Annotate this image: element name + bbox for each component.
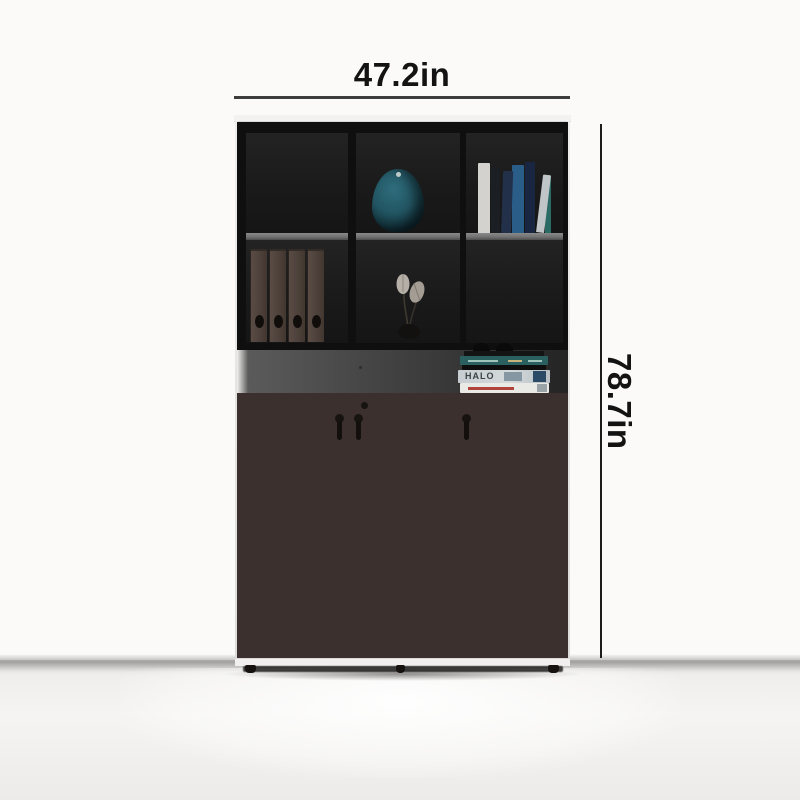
binder-hole: [312, 315, 321, 328]
height-dimension-label: 78.7in: [603, 346, 636, 456]
door-handle-right: [462, 414, 471, 442]
stacked-books: HALO: [456, 351, 552, 393]
screw-dot: [359, 366, 362, 369]
standing-books: [478, 159, 560, 233]
cabinet-foot: [396, 665, 405, 673]
cabinet-door-middle: [349, 393, 459, 658]
open-niche: HALO: [237, 350, 568, 393]
shelf-compartment-bottom-left: [246, 240, 348, 343]
stacked-book-halo: HALO: [458, 370, 550, 383]
tulip-flowers: [384, 265, 434, 343]
shelf-edge: [246, 233, 348, 240]
door-section: [237, 393, 568, 658]
book-spine: [525, 162, 535, 233]
door-lock-keyhole: [361, 402, 368, 409]
handle-bar: [356, 421, 361, 440]
shelf-edge: [466, 233, 563, 240]
shelf-compartment-top-middle: [356, 133, 460, 233]
width-dimension-label: 47.2in: [234, 58, 570, 91]
ring-binder: [288, 249, 305, 342]
binder-hole: [293, 315, 302, 328]
book-spine: [491, 167, 500, 233]
binder-hole: [255, 315, 264, 328]
teal-vase: [372, 169, 424, 232]
stacked-book: [460, 356, 548, 365]
handle-bar: [464, 421, 469, 440]
cabinet-foot: [245, 665, 256, 673]
ring-binder: [250, 249, 267, 342]
handle-bar: [337, 421, 342, 440]
bookcase-cabinet: HALO: [235, 115, 570, 673]
door-handle-left: [335, 414, 344, 442]
spine-graphic: [504, 372, 522, 381]
stacked-book: [460, 383, 549, 393]
floor-reflection: [120, 668, 680, 778]
ring-binders: [250, 249, 324, 342]
cabinet-door-left: [237, 393, 347, 658]
shelf-compartment-top-left: [246, 133, 348, 233]
upper-shelf-unit: [237, 122, 568, 350]
niche-side-panel: [237, 350, 248, 393]
cabinet-top-edge: [234, 115, 571, 122]
cabinet-foot: [548, 665, 559, 673]
cabinet-door-right: [461, 393, 568, 658]
width-dimension-line: [234, 96, 570, 99]
book-spine: [478, 163, 490, 233]
spine-graphic: [533, 371, 546, 382]
shelf-compartment-bottom-right: [466, 240, 563, 343]
ring-binder: [307, 249, 324, 342]
vase-highlight: [396, 172, 401, 177]
ring-binder: [269, 249, 286, 342]
binder-hole: [274, 315, 283, 328]
book-spine: [512, 165, 524, 233]
halo-spine-text: HALO: [465, 372, 495, 381]
shelf-compartment-bottom-middle: [356, 240, 460, 343]
door-handle-middle: [354, 414, 363, 442]
shelf-edge: [356, 233, 460, 240]
product-scene: 47.2in 78.7in: [0, 0, 800, 800]
shelf-compartment-top-right: [466, 133, 563, 233]
